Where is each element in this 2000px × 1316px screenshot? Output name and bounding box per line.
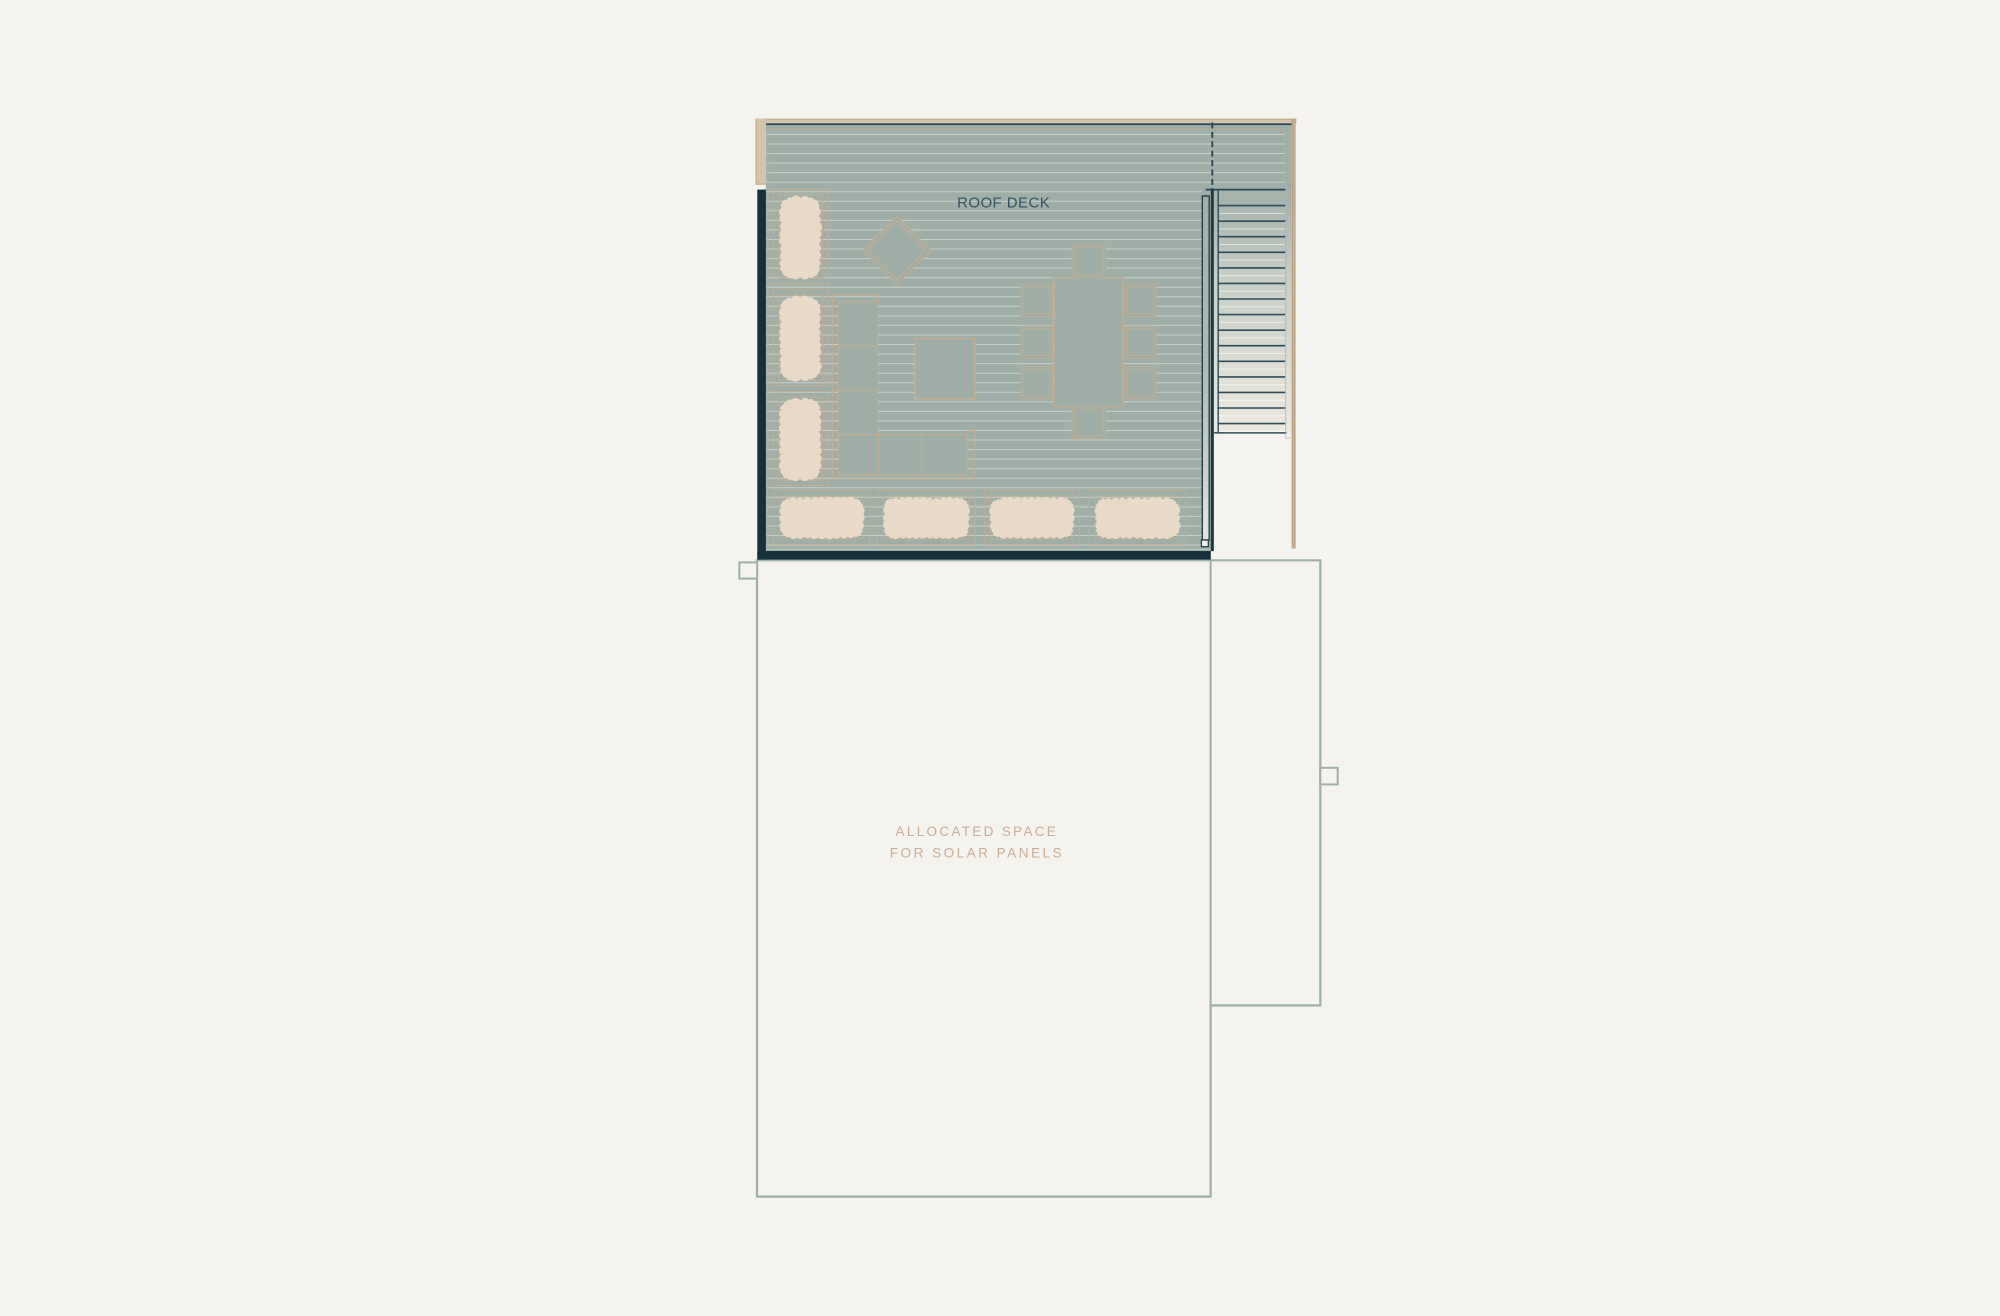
- svg-text:FOR SOLAR PANELS: FOR SOLAR PANELS: [890, 845, 1064, 860]
- svg-text:ROOF DECK: ROOF DECK: [957, 195, 1052, 212]
- svg-text:ALLOCATED SPACE: ALLOCATED SPACE: [896, 824, 1059, 839]
